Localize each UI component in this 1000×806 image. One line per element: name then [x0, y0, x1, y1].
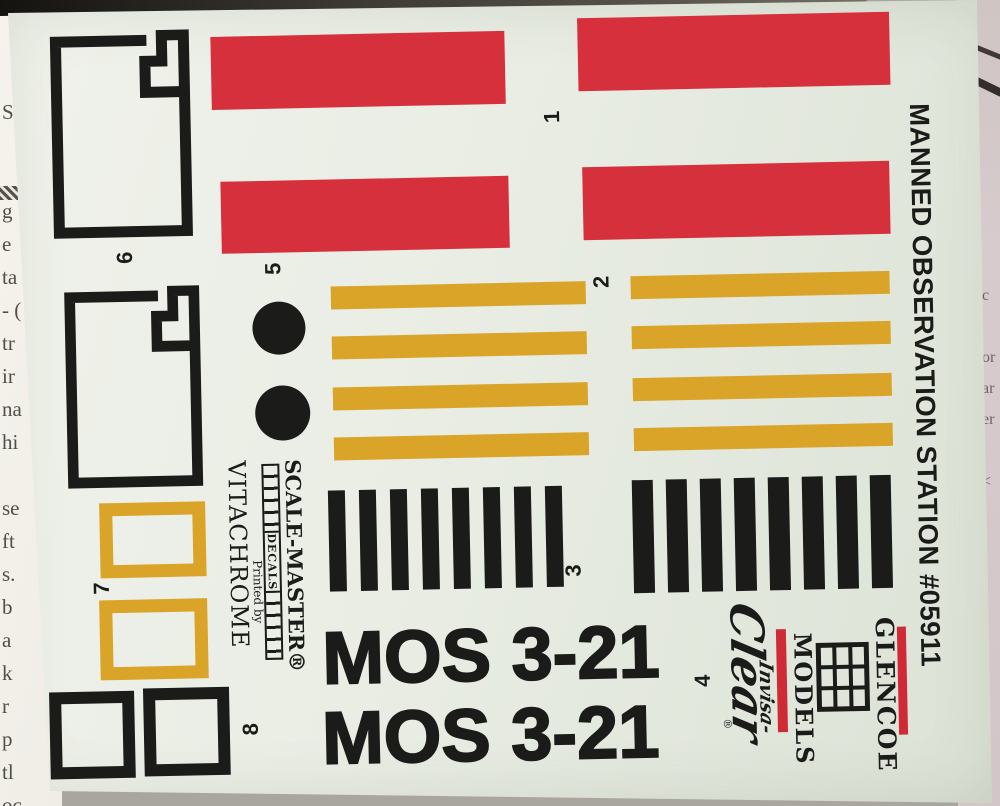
registered-mark: ®	[721, 718, 734, 729]
black-dot-decal	[255, 385, 311, 441]
black-stripe-decal	[514, 486, 533, 587]
black-stripe-group	[632, 475, 893, 593]
black-dot-decal	[252, 301, 306, 355]
glencoe-name: GLENCOE	[871, 617, 900, 753]
part-label-8: 8	[239, 717, 263, 741]
black-outline-square-decal	[49, 691, 136, 780]
models-name: MODELS	[790, 632, 818, 753]
black-stripe-decal	[452, 488, 471, 589]
black-stripe-decal	[870, 475, 893, 588]
black-stripe-group	[328, 486, 564, 592]
hatched-bar-fragment	[0, 186, 18, 200]
red-bar-decal	[577, 12, 890, 92]
scale-master-block: SCALE-MASTER® DECALS Printed by VITACHRO…	[227, 459, 307, 668]
mos-marking-decal: MOS 3-21	[321, 689, 660, 781]
yellow-stripe-decal	[634, 423, 893, 451]
yellow-stripe-decal	[630, 271, 889, 299]
yellow-outline-rectangle-decal	[99, 501, 207, 578]
yellow-stripe-decal	[332, 331, 587, 359]
black-outline-square-decal	[143, 687, 231, 777]
black-stripe-decal	[421, 488, 440, 589]
part-label-1: 1	[540, 105, 564, 129]
scale-master-brand: SCALE-MASTER®	[281, 459, 307, 666]
ruler-ticks-icon	[263, 466, 278, 531]
black-stripe-decal	[836, 476, 859, 589]
black-stripe-decal	[700, 478, 723, 591]
red-bar-decal	[582, 161, 890, 240]
black-stripe-decal	[359, 490, 378, 591]
notched-panel-decal	[63, 285, 205, 489]
yellow-stripe-decal	[331, 281, 586, 309]
yellow-stripe-decal	[633, 373, 892, 401]
window-grid-icon	[815, 641, 870, 712]
part-label-2: 2	[589, 270, 613, 294]
ruler-ticks-icon	[266, 593, 281, 658]
black-stripe-decal	[768, 477, 791, 590]
black-stripe-decal	[632, 480, 655, 593]
part-label-3: 3	[561, 558, 585, 582]
yellow-stripe-decal	[333, 382, 588, 410]
decals-label: DECALS	[265, 531, 280, 593]
part-label-5: 5	[261, 256, 285, 280]
black-stripe-decal	[390, 489, 409, 590]
red-bar-decal	[220, 176, 509, 254]
yellow-stripe-decal	[334, 432, 589, 460]
sheet-title: MANNED OBSERVATION STATION #05911	[901, 103, 947, 696]
decal-sheet: 6 1 5 2	[0, 0, 1000, 806]
vitachrome-label: VITACHROME	[223, 460, 252, 667]
decal-artwork: 6 1 5 2	[0, 0, 1000, 806]
part-label-7: 7	[90, 576, 114, 600]
yellow-outline-rectangle-decal	[99, 598, 209, 680]
black-stripe-decal	[328, 490, 347, 591]
red-bar-decal	[210, 31, 505, 110]
notched-panel-decal	[49, 29, 193, 239]
part-label-6: 6	[113, 246, 137, 270]
black-stripe-decal	[483, 487, 502, 588]
part-label-4: 4	[691, 669, 715, 693]
glencoe-logo-block: GLENCOE MODELS Invisa- Clear ®	[717, 597, 910, 756]
mos-marking-decal: MOS 3-21	[321, 609, 660, 701]
black-stripe-decal	[802, 476, 825, 589]
black-stripe-decal	[734, 478, 757, 591]
invisa-clear-logo: Invisa- Clear ®	[715, 599, 776, 750]
black-stripe-decal	[666, 479, 689, 592]
decal-sheet-photo: S g e ta - ( tr ir na hi se ft s. b a k …	[0, 0, 1000, 806]
yellow-stripe-decal	[631, 321, 890, 349]
